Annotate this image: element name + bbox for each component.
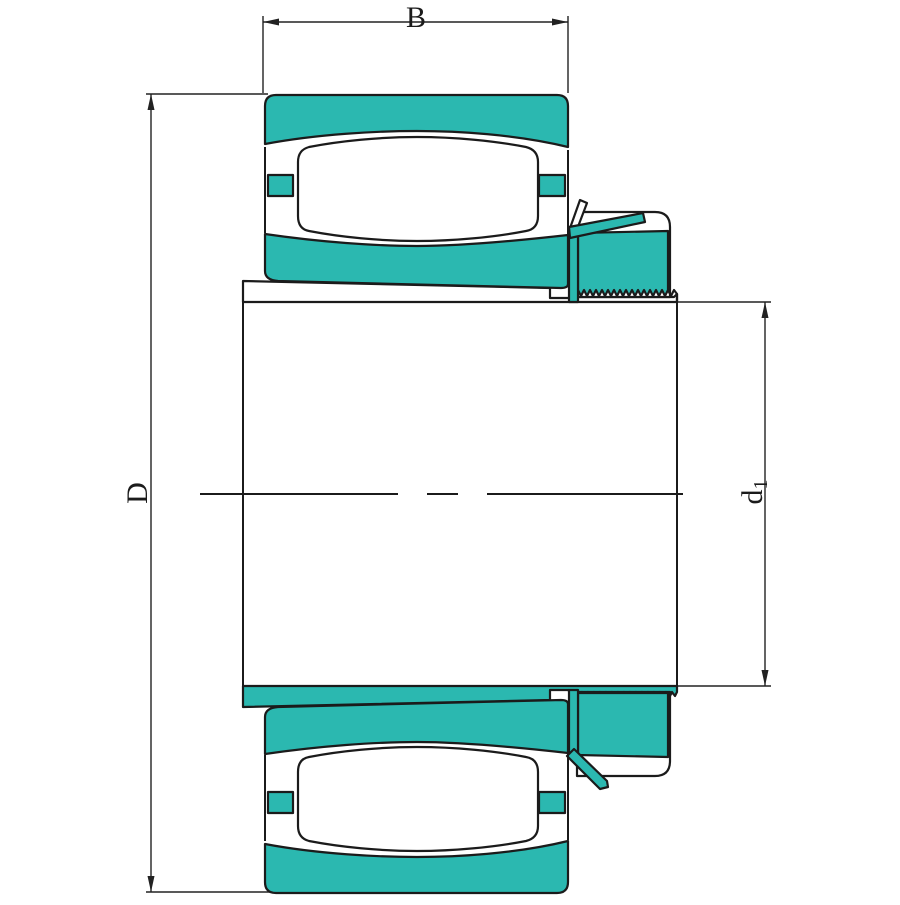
d1-label: d1 [736,480,772,505]
d1-arrow-bottom [762,670,769,686]
lock-nut-bottom-fill [578,693,668,757]
d-arrow-top [148,94,155,110]
inner-ring-bottom [265,700,568,754]
d-arrow-bottom [148,876,155,892]
b-arrow-right [552,19,568,26]
b-arrow-left [263,19,279,26]
roller-bottom [298,747,538,851]
roller-top [298,137,538,241]
bearing-adapter-sleeve-drawing: B D d1 [0,0,900,900]
dimension-B: B [263,1,568,93]
lock-nut-top-fill [578,231,668,296]
b-label: B [406,1,426,34]
cage-top-right [539,175,565,196]
bearing-top [265,95,568,288]
cage-top-left [268,175,293,196]
lock-washer-bottom-strip [569,690,578,758]
bearing-bottom [265,700,568,893]
inner-ring-top [265,234,568,288]
dimension-d1: d1 [677,302,772,686]
cage-bottom-right [539,792,565,813]
d1-arrow-top [762,302,769,318]
cage-bottom-left [268,792,293,813]
lock-washer-top-strip [569,231,578,302]
technical-drawing-page: B D d1 [0,0,900,900]
lock-nut-bottom [577,692,670,776]
d-label: D [121,482,154,504]
